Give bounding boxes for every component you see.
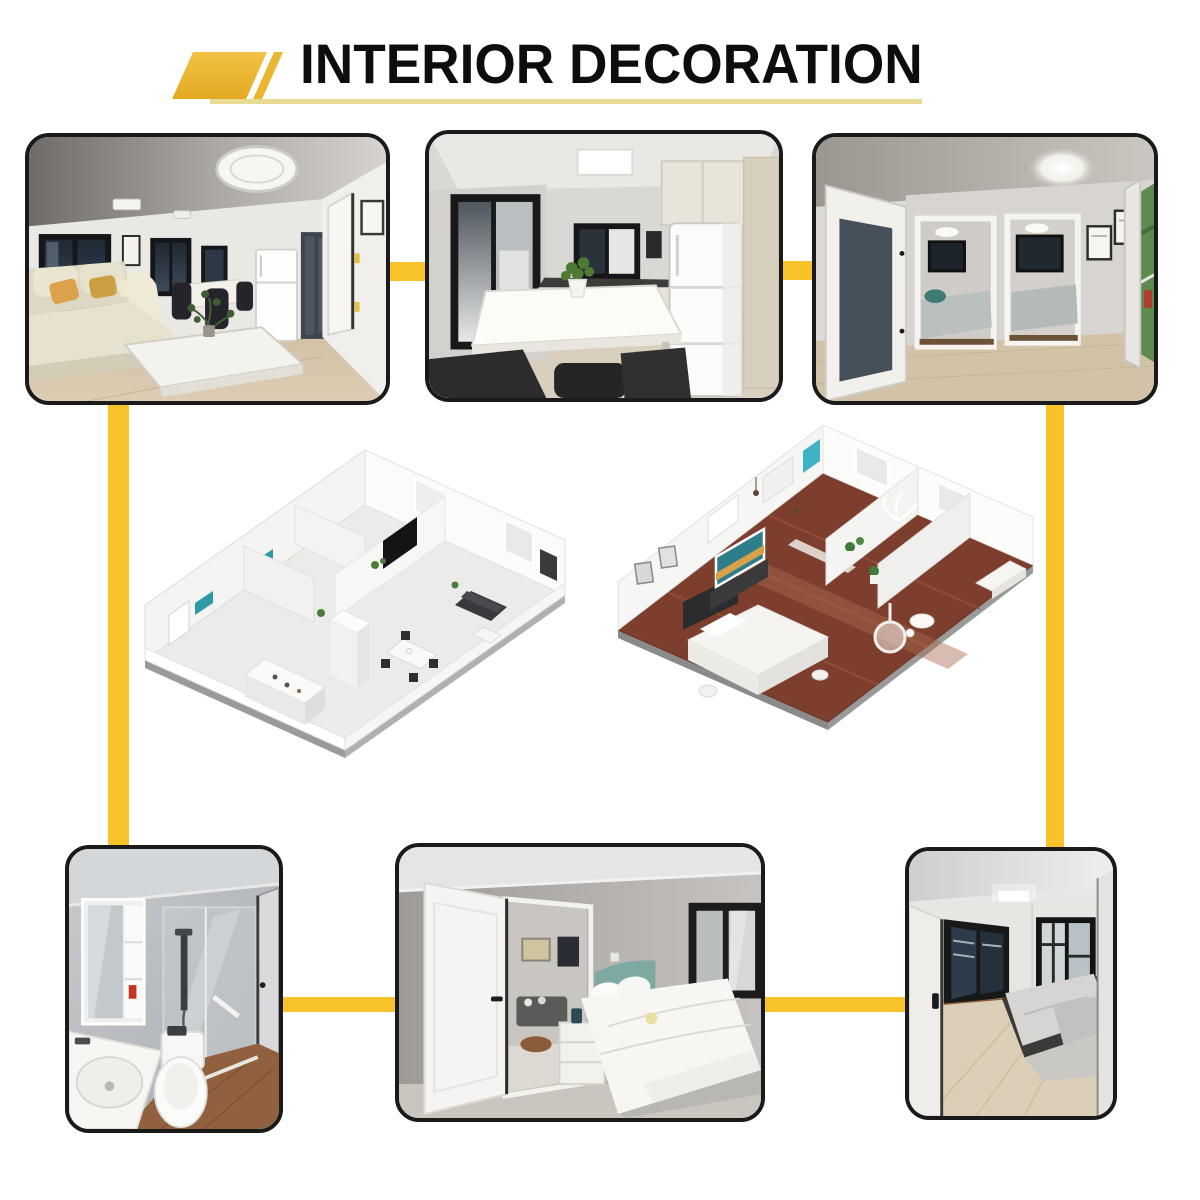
bedroom-illustration (399, 847, 761, 1118)
bedroom-doorway (918, 219, 994, 347)
floorplan-white-illustration (125, 445, 575, 830)
fridge-cabinet-block (330, 610, 370, 688)
connector-top-right (783, 261, 813, 280)
render-isometric-floorplan-white (125, 445, 575, 830)
photo-bedroom-hallway (812, 133, 1158, 405)
kitchen-illustration (429, 134, 779, 398)
small-bedroom-illustration (909, 851, 1113, 1116)
bedroom-doorway (1007, 217, 1077, 343)
mirror-cabinet (82, 900, 144, 1024)
window-left (944, 919, 1009, 1005)
photo-bathroom (65, 845, 283, 1133)
window (574, 223, 640, 279)
page-title: INTERIOR DECORATION (300, 33, 923, 95)
open-door-right-exterior (1125, 180, 1154, 368)
door-frame-right (1098, 870, 1113, 1116)
ceiling-lamp (217, 147, 297, 192)
interior-decoration-infographic: INTERIOR DECORATION (0, 0, 1200, 1200)
open-door (424, 883, 506, 1114)
living-room-illustration (29, 137, 386, 401)
connector-top-left (388, 262, 425, 281)
photo-living-room (25, 133, 390, 405)
tall-cabinet (744, 157, 779, 388)
bathroom-illustration (69, 849, 279, 1129)
connector-bottom-right (762, 997, 908, 1012)
gold-parallelogram-icon (172, 52, 267, 99)
toilet (155, 1026, 207, 1127)
photo-bedroom (395, 843, 765, 1122)
floorplan-wood-illustration (588, 425, 1058, 810)
photo-small-bedroom (905, 847, 1117, 1120)
hallway-illustration (816, 137, 1154, 401)
title-underline (210, 99, 922, 104)
render-isometric-floorplan-wood (588, 425, 1058, 810)
photo-kitchen-dining (425, 130, 783, 402)
connector-bottom-left (280, 997, 398, 1012)
door-left (909, 906, 942, 1116)
open-door-left (826, 186, 906, 401)
